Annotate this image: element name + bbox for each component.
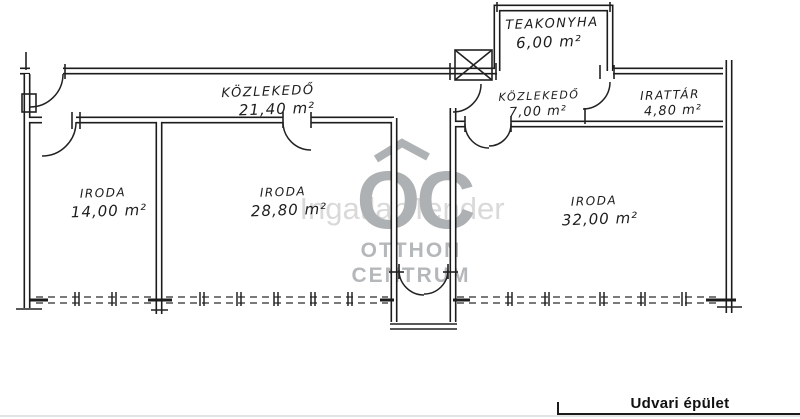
door-arc-office2 bbox=[283, 122, 311, 150]
watermark-brand-line1: OTTHON bbox=[361, 239, 462, 262]
room-area-teakonyha: 6,00 m² bbox=[516, 32, 582, 52]
room-label-iroda-2: IRODA bbox=[260, 184, 307, 200]
floor-plan-page: IngatlanTender OC OTTHON CENTRUM bbox=[0, 0, 800, 419]
room-label-iroda-3: IRODA bbox=[571, 193, 618, 209]
title-block-rule bbox=[557, 413, 800, 415]
watermark: IngatlanTender OC OTTHON CENTRUM bbox=[299, 143, 504, 287]
room-area-iroda-1: 14,00 m² bbox=[71, 201, 148, 222]
room-area-kozlekedo-main: 21,40 m² bbox=[239, 99, 316, 120]
room-area-irattar: 4,80 m² bbox=[644, 102, 702, 119]
room-label-irattar: IRATTÁR bbox=[640, 87, 700, 103]
double-door-office3-left bbox=[465, 124, 489, 148]
building-caption: Udvari épület bbox=[558, 395, 800, 412]
window-wall bbox=[30, 292, 736, 329]
door-arc-archive bbox=[583, 82, 610, 109]
room-label-iroda-1: IRODA bbox=[80, 185, 127, 201]
title-block-edge bbox=[557, 402, 559, 415]
bottom-rule-light bbox=[0, 415, 800, 417]
door-arc-main-entrance bbox=[30, 74, 63, 107]
door-arc-office1 bbox=[42, 122, 76, 156]
door-arc-corridor bbox=[453, 84, 481, 112]
room-area-iroda-2: 28,80 m² bbox=[251, 200, 328, 221]
double-door-office3-right bbox=[489, 124, 511, 146]
room-area-iroda-3: 32,00 m² bbox=[562, 209, 639, 230]
shaft-cross-icon bbox=[455, 50, 492, 80]
room-area-kozlekedo-small: 7,00 m² bbox=[509, 103, 567, 120]
